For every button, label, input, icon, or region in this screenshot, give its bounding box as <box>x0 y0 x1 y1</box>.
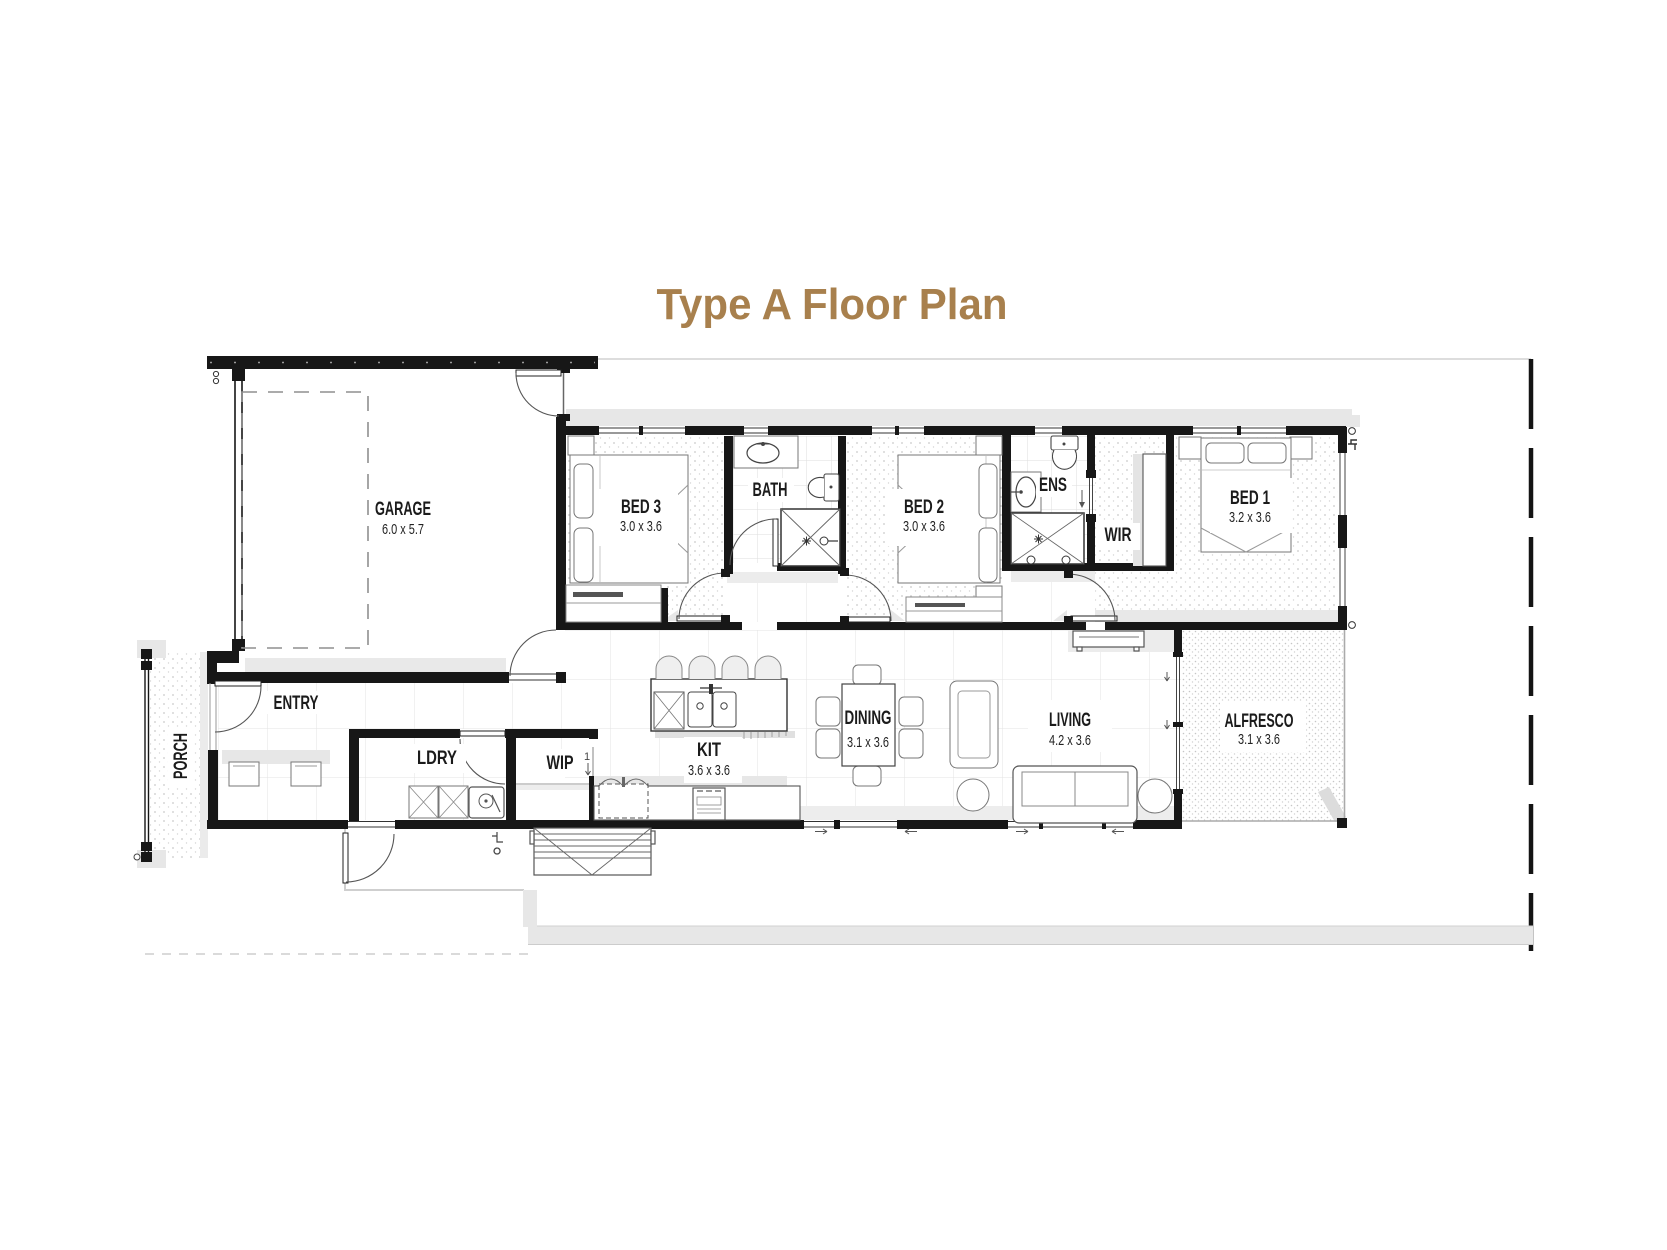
svg-text:BED 3: BED 3 <box>621 497 661 518</box>
svg-text:PORCH: PORCH <box>171 733 192 779</box>
svg-text:3.6 x 3.6: 3.6 x 3.6 <box>688 762 730 779</box>
svg-text:3.2 x 3.6: 3.2 x 3.6 <box>1229 509 1271 526</box>
svg-text:3.1 x 3.6: 3.1 x 3.6 <box>1238 731 1280 748</box>
svg-text:Type A Floor Plan: Type A Floor Plan <box>657 281 1008 329</box>
svg-text:1: 1 <box>584 751 590 763</box>
svg-text:3.0 x 3.6: 3.0 x 3.6 <box>620 518 662 535</box>
svg-text:ENTRY: ENTRY <box>274 693 319 714</box>
svg-text:WIR: WIR <box>1105 525 1132 546</box>
svg-text:6.0 x 5.7: 6.0 x 5.7 <box>382 521 424 538</box>
svg-text:BATH: BATH <box>753 480 788 501</box>
svg-text:ALFRESCO: ALFRESCO <box>1225 711 1294 732</box>
svg-text:LDRY: LDRY <box>417 748 457 769</box>
svg-text:3.0 x 3.6: 3.0 x 3.6 <box>903 518 945 535</box>
svg-text:GARAGE: GARAGE <box>375 499 431 520</box>
svg-text:WIP: WIP <box>547 753 574 774</box>
svg-text:KIT: KIT <box>697 740 721 761</box>
svg-text:BED 1: BED 1 <box>1230 488 1270 509</box>
svg-text:LIVING: LIVING <box>1049 710 1091 731</box>
svg-text:4.2 x 3.6: 4.2 x 3.6 <box>1049 732 1091 749</box>
svg-text:ENS: ENS <box>1039 475 1067 496</box>
svg-text:3.1 x 3.6: 3.1 x 3.6 <box>847 734 889 751</box>
svg-text:DINING: DINING <box>845 708 892 729</box>
svg-text:BED 2: BED 2 <box>904 497 944 518</box>
